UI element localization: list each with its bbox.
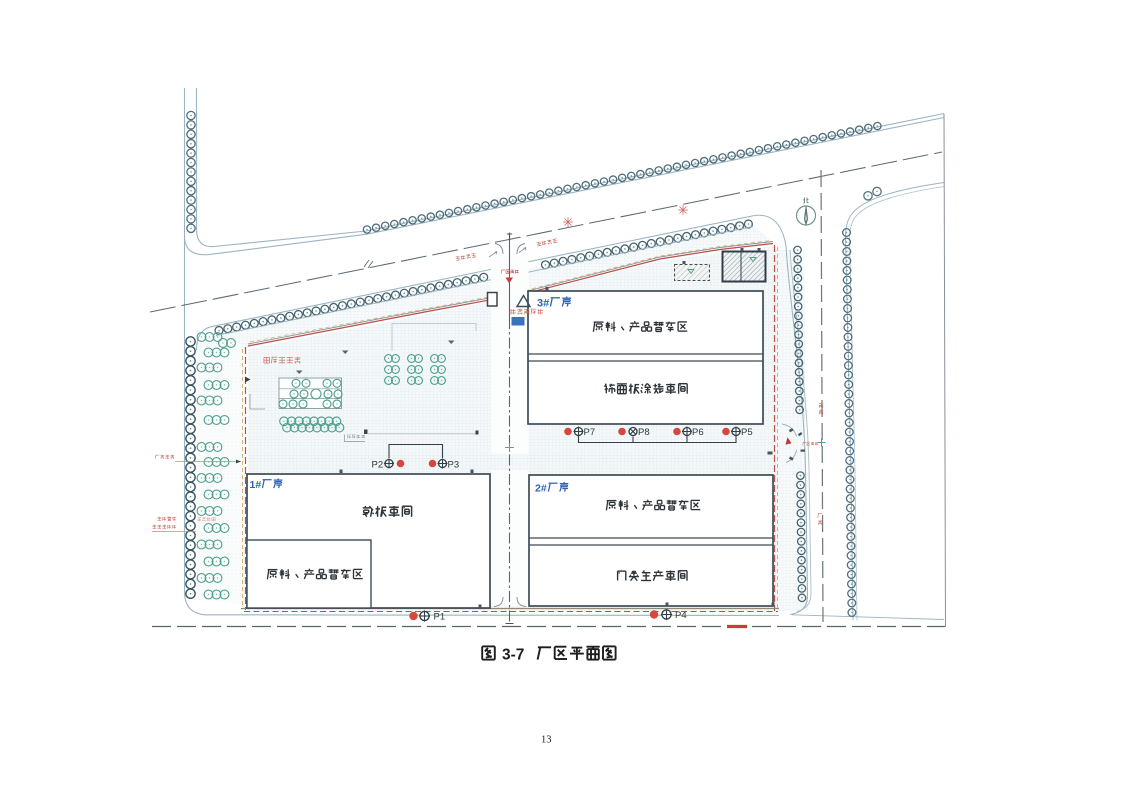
svg-text:P5: P5 xyxy=(741,427,753,438)
svg-text:P2: P2 xyxy=(372,460,384,471)
svg-text:1#: 1# xyxy=(250,479,262,491)
svg-text:P6: P6 xyxy=(692,427,704,438)
svg-text:3-7: 3-7 xyxy=(502,647,524,664)
svg-text:P1: P1 xyxy=(434,612,446,623)
svg-text:P3: P3 xyxy=(448,460,460,471)
svg-text:3#: 3# xyxy=(537,298,549,310)
svg-text:13: 13 xyxy=(541,735,552,746)
svg-text:2#: 2# xyxy=(535,483,547,495)
svg-text:P7: P7 xyxy=(584,427,596,438)
svg-text:P4: P4 xyxy=(675,610,687,621)
svg-text:P8: P8 xyxy=(638,427,650,438)
